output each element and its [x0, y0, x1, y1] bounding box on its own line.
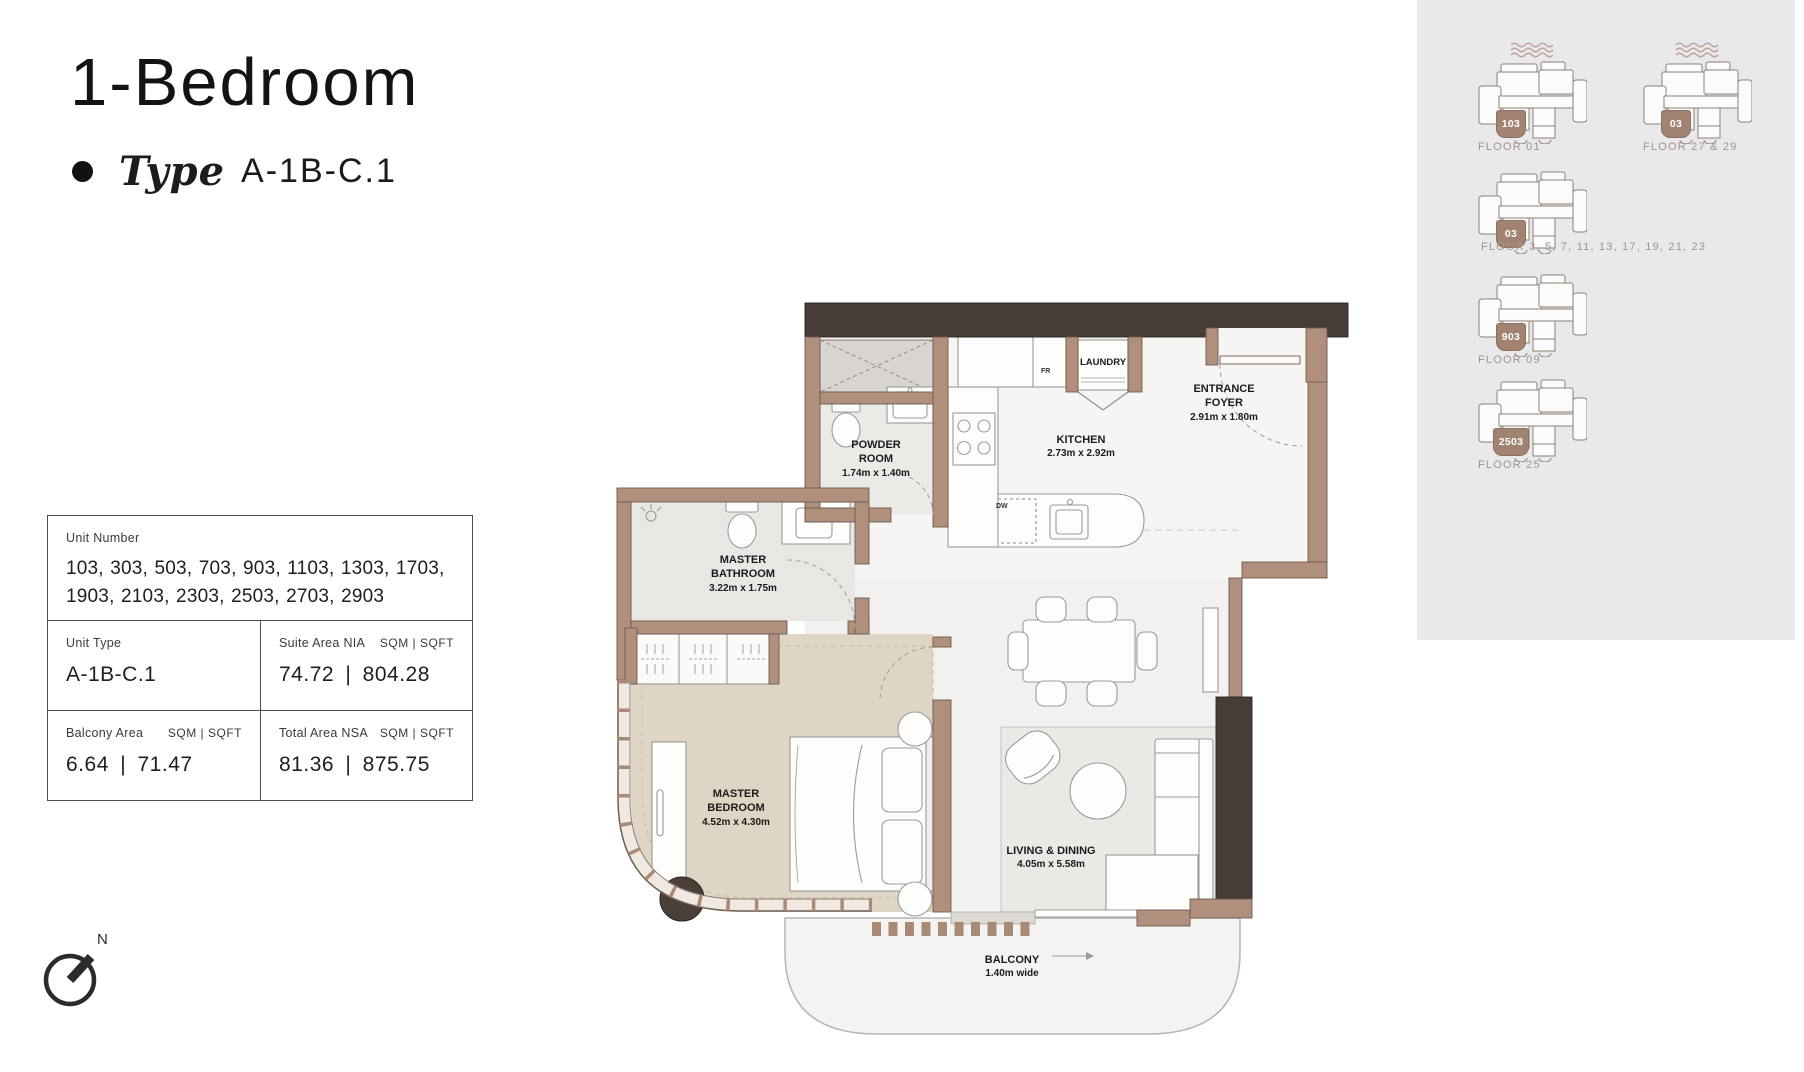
nightstand-icon — [898, 882, 932, 916]
suite-area-value: 74.72 | 804.28 — [279, 663, 454, 687]
room-label-kitchen: KITCHEN 2.73m x 2.92m — [1047, 433, 1115, 460]
bed-icon — [790, 737, 933, 891]
unit-badge: 903 — [1496, 323, 1526, 351]
north-label: N — [97, 931, 108, 948]
fridge-cabinet — [958, 337, 1066, 387]
sliding-door — [1035, 910, 1137, 917]
dining-chair-icon — [1087, 597, 1117, 622]
room-label-balcony: BALCONY 1.40m wide — [985, 953, 1039, 980]
table-row: Unit Number 103, 303, 503, 703, 903, 110… — [48, 516, 472, 620]
console-icon — [1203, 608, 1218, 692]
room-label-living-dining: LIVING & DINING 4.05m x 5.58m — [1006, 844, 1095, 871]
dining-chair-icon — [1036, 681, 1066, 706]
balcony-area-label: Balcony Area — [66, 726, 143, 740]
nightstand-icon — [898, 712, 932, 746]
waves-icon — [1675, 42, 1719, 58]
keyplan-floor-25: 2503 FLOOR 25 — [1477, 378, 1587, 456]
dresser-icon — [652, 742, 686, 884]
wardrobe-icon — [631, 634, 775, 684]
unit-type-value: A-1B-C.1 — [66, 663, 242, 687]
table-row: Unit Type A-1B-C.1 Suite Area NIA SQM | … — [48, 620, 472, 710]
keyplan-label: FLOOR 3, 5, 7, 11, 13, 17, 19, 21, 23 — [1481, 241, 1706, 253]
keyplan-label: FLOOR 09 — [1478, 354, 1541, 366]
room-label-master-bathroom: MASTER BATHROOM 3.22m x 1.75m — [703, 553, 783, 595]
dining-chair-icon — [1008, 632, 1028, 670]
wall-dark-block — [1216, 697, 1252, 899]
type-value: A-1B-C.1 — [241, 152, 397, 191]
room-label-laundry: LAUNDRY — [1080, 357, 1126, 369]
unit-number-label: Unit Number — [66, 531, 139, 545]
keyplan-floor-01: 103 FLOOR 01 — [1477, 60, 1587, 138]
stove-icon — [953, 413, 995, 465]
compass-icon — [40, 938, 130, 1018]
page: 1-Bedroom Type A-1B-C.1 Unit Number 103,… — [0, 0, 1804, 1072]
unit-numbers-value: 103, 303, 503, 703, 903, 1103, 1303, 170… — [66, 555, 454, 610]
table-row: Balcony Area SQM | SQFT 6.64 | 71.47 Tot… — [48, 710, 472, 800]
dining-chair-icon — [1036, 597, 1066, 622]
balcony-area-value: 6.64 | 71.47 — [66, 753, 242, 777]
room-label-foyer: ENTRANCE FOYER 2.91m x 1.80m — [1178, 382, 1270, 424]
page-title: 1-Bedroom — [70, 44, 419, 121]
total-area-value: 81.36 | 875.75 — [279, 753, 454, 777]
waves-icon — [1510, 42, 1554, 58]
unit-type-label: Unit Type — [66, 636, 121, 650]
coffee-table-icon — [1070, 763, 1126, 819]
total-area-label: Total Area NSA — [279, 726, 368, 740]
building-keyplan-icon — [1642, 60, 1752, 144]
bullet-icon — [72, 161, 93, 182]
keyplan-floor-3-23: 03 FLOOR 3, 5, 7, 11, 13, 17, 19, 21, 23 — [1477, 170, 1587, 248]
ottoman-icon — [1106, 855, 1198, 911]
unit-badge: 103 — [1496, 110, 1526, 138]
balcony-area-units: SQM | SQFT — [168, 726, 242, 740]
floor-plan: POWDER ROOM 1.74m x 1.40m KITCHEN 2.73m … — [530, 250, 1350, 1040]
building-keyplan-icon — [1477, 60, 1587, 144]
floor-plan-graphic — [530, 250, 1350, 1040]
keyplan-sidebar: 103 FLOOR 01 — [1417, 0, 1795, 640]
suite-area-units: SQM | SQFT — [380, 636, 454, 650]
dining-table-icon — [1023, 620, 1135, 682]
total-area-units: SQM | SQFT — [380, 726, 454, 740]
unit-type-heading: Type A-1B-C.1 — [72, 148, 397, 195]
unit-badge: 03 — [1661, 110, 1691, 138]
suite-area-label: Suite Area NIA — [279, 636, 365, 650]
unit-badge: 2503 — [1493, 428, 1529, 456]
keyplan-floor-27-29: 03 FLOOR 27 & 29 — [1642, 60, 1752, 138]
type-script-label: Type — [119, 148, 225, 195]
room-label-powder: POWDER ROOM 1.74m x 1.40m — [841, 438, 911, 480]
keyplan-floor-09: 903 FLOOR 09 — [1477, 273, 1587, 351]
building-keyplan-icon — [1477, 273, 1587, 357]
toilet-icon — [726, 500, 758, 548]
dining-chair-icon — [1087, 681, 1117, 706]
keyplan-label: FLOOR 27 & 29 — [1643, 141, 1737, 153]
unit-info-table: Unit Number 103, 303, 503, 703, 903, 110… — [47, 515, 473, 801]
entrance-door-leaf — [1220, 356, 1300, 364]
keyplan-label: FLOOR 01 — [1478, 141, 1541, 153]
compass: N — [40, 938, 130, 1018]
dining-chair-icon — [1137, 632, 1157, 670]
kitchen-counter — [948, 387, 998, 547]
dishwasher-label: DW — [996, 502, 1008, 511]
fridge-label: FR — [1041, 367, 1050, 376]
room-label-master-bedroom: MASTER BEDROOM 4.52m x 4.30m — [697, 787, 775, 829]
keyplan-label: FLOOR 25 — [1478, 459, 1541, 471]
